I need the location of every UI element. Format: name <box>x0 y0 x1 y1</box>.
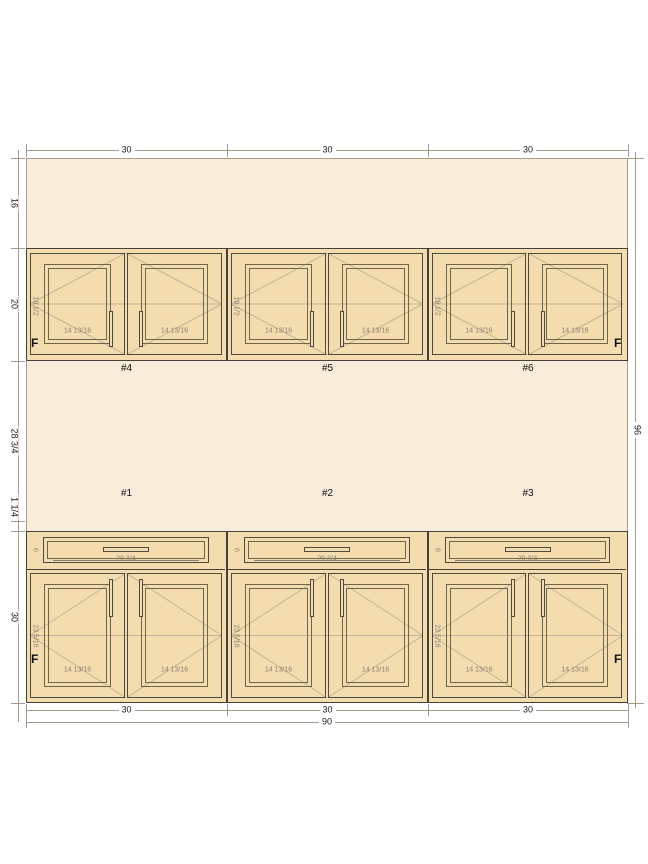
base-cabinet-1[interactable]: 29 3/4623 5/1614 13/1614 13/16F <box>26 531 227 703</box>
cabinet-number-label: #5 <box>322 364 333 374</box>
dim-label-top-width: 30 <box>520 146 536 155</box>
door-width-label: 14 13/16 <box>161 328 188 335</box>
finished-end-label: F <box>614 337 621 349</box>
dim-label-bottom-width: 30 <box>118 706 134 715</box>
dim-tick <box>26 704 27 716</box>
door-width-label: 14 13/16 <box>561 328 588 335</box>
dim-tick <box>627 703 644 704</box>
door-handle <box>310 311 314 347</box>
cabinet-height-label: 19 1/2 <box>32 296 39 315</box>
dim-tick <box>11 531 25 532</box>
upper-cabinet-6[interactable]: 19 1/214 13/1614 13/16F <box>428 248 628 361</box>
dim-tick <box>428 144 429 157</box>
door-handle <box>541 579 545 617</box>
finished-end-label: F <box>614 653 621 665</box>
dim-label-left-height: 1 1/4 <box>10 494 19 520</box>
door-handle <box>139 311 143 347</box>
upper-cabinet-5[interactable]: 19 1/214 13/1614 13/16 <box>227 248 428 361</box>
door-width-label: 14 13/16 <box>64 667 91 674</box>
dim-label-total-height: 96 <box>633 422 642 438</box>
door-handle <box>340 579 344 617</box>
door-height-label: 23 5/16 <box>32 624 39 647</box>
cabinet-number-label: #1 <box>121 489 132 499</box>
dim-tick <box>628 716 629 728</box>
dim-tick <box>11 248 25 249</box>
cabinet-number-label: #3 <box>522 489 533 499</box>
dim-tick <box>11 521 25 522</box>
dim-tick <box>26 144 27 157</box>
door-width-label: 14 13/16 <box>465 667 492 674</box>
cabinet-height-label: 19 1/2 <box>434 296 441 315</box>
cabinet-number-label: #6 <box>522 364 533 374</box>
door-width-label: 14 13/16 <box>64 328 91 335</box>
dim-label-left-height: 30 <box>10 609 19 625</box>
cabinet-number-label: #4 <box>121 364 132 374</box>
dim-tick <box>227 144 228 157</box>
dim-label-left-height: 28 3/4 <box>10 425 19 456</box>
base-cabinet-3[interactable]: 29 3/4623 5/1614 13/1614 13/16F <box>428 531 628 703</box>
finished-end-label: F <box>31 653 38 665</box>
door-width-label: 14 13/16 <box>161 667 188 674</box>
door-height-label: 23 5/16 <box>434 624 441 647</box>
cabinet-height-label: 19 1/2 <box>233 296 240 315</box>
door-handle <box>109 579 113 617</box>
base-cabinet-2[interactable]: 29 3/4623 5/1614 13/1614 13/16 <box>227 531 428 703</box>
door-handle <box>109 311 113 347</box>
door-height-label: 23 5/16 <box>233 624 240 647</box>
door-handle <box>541 311 545 347</box>
dim-tick <box>627 158 644 159</box>
door-handle <box>310 579 314 617</box>
dim-label-left-height: 16 <box>10 195 19 211</box>
elevation-drawing-canvas: 19 1/214 13/1614 13/16F#419 1/214 13/161… <box>0 0 648 864</box>
finished-end-label: F <box>31 337 38 349</box>
dim-label-top-width: 30 <box>319 146 335 155</box>
door-width-label: 14 13/16 <box>265 667 292 674</box>
door-handle <box>139 579 143 617</box>
dim-tick <box>227 704 228 716</box>
dim-tick <box>11 703 25 704</box>
cabinet-number-label: #2 <box>322 489 333 499</box>
door-width-label: 14 13/16 <box>362 667 389 674</box>
door-handle <box>511 579 515 617</box>
door-width-label: 14 13/16 <box>561 667 588 674</box>
dim-tick <box>428 704 429 716</box>
dim-tick <box>26 716 27 728</box>
dim-tick <box>628 144 629 157</box>
door-handle <box>511 311 515 347</box>
dim-label-total-width: 90 <box>319 718 335 727</box>
dim-tick <box>628 704 629 716</box>
upper-cabinet-4[interactable]: 19 1/214 13/1614 13/16F <box>26 248 227 361</box>
dim-label-bottom-width: 30 <box>520 706 536 715</box>
door-width-label: 14 13/16 <box>465 328 492 335</box>
dim-label-bottom-width: 30 <box>319 706 335 715</box>
door-width-label: 14 13/16 <box>362 328 389 335</box>
dim-tick <box>11 158 25 159</box>
dim-label-left-height: 20 <box>10 296 19 312</box>
dim-label-top-width: 30 <box>118 146 134 155</box>
door-width-label: 14 13/16 <box>265 328 292 335</box>
door-handle <box>340 311 344 347</box>
dim-tick <box>11 361 25 362</box>
